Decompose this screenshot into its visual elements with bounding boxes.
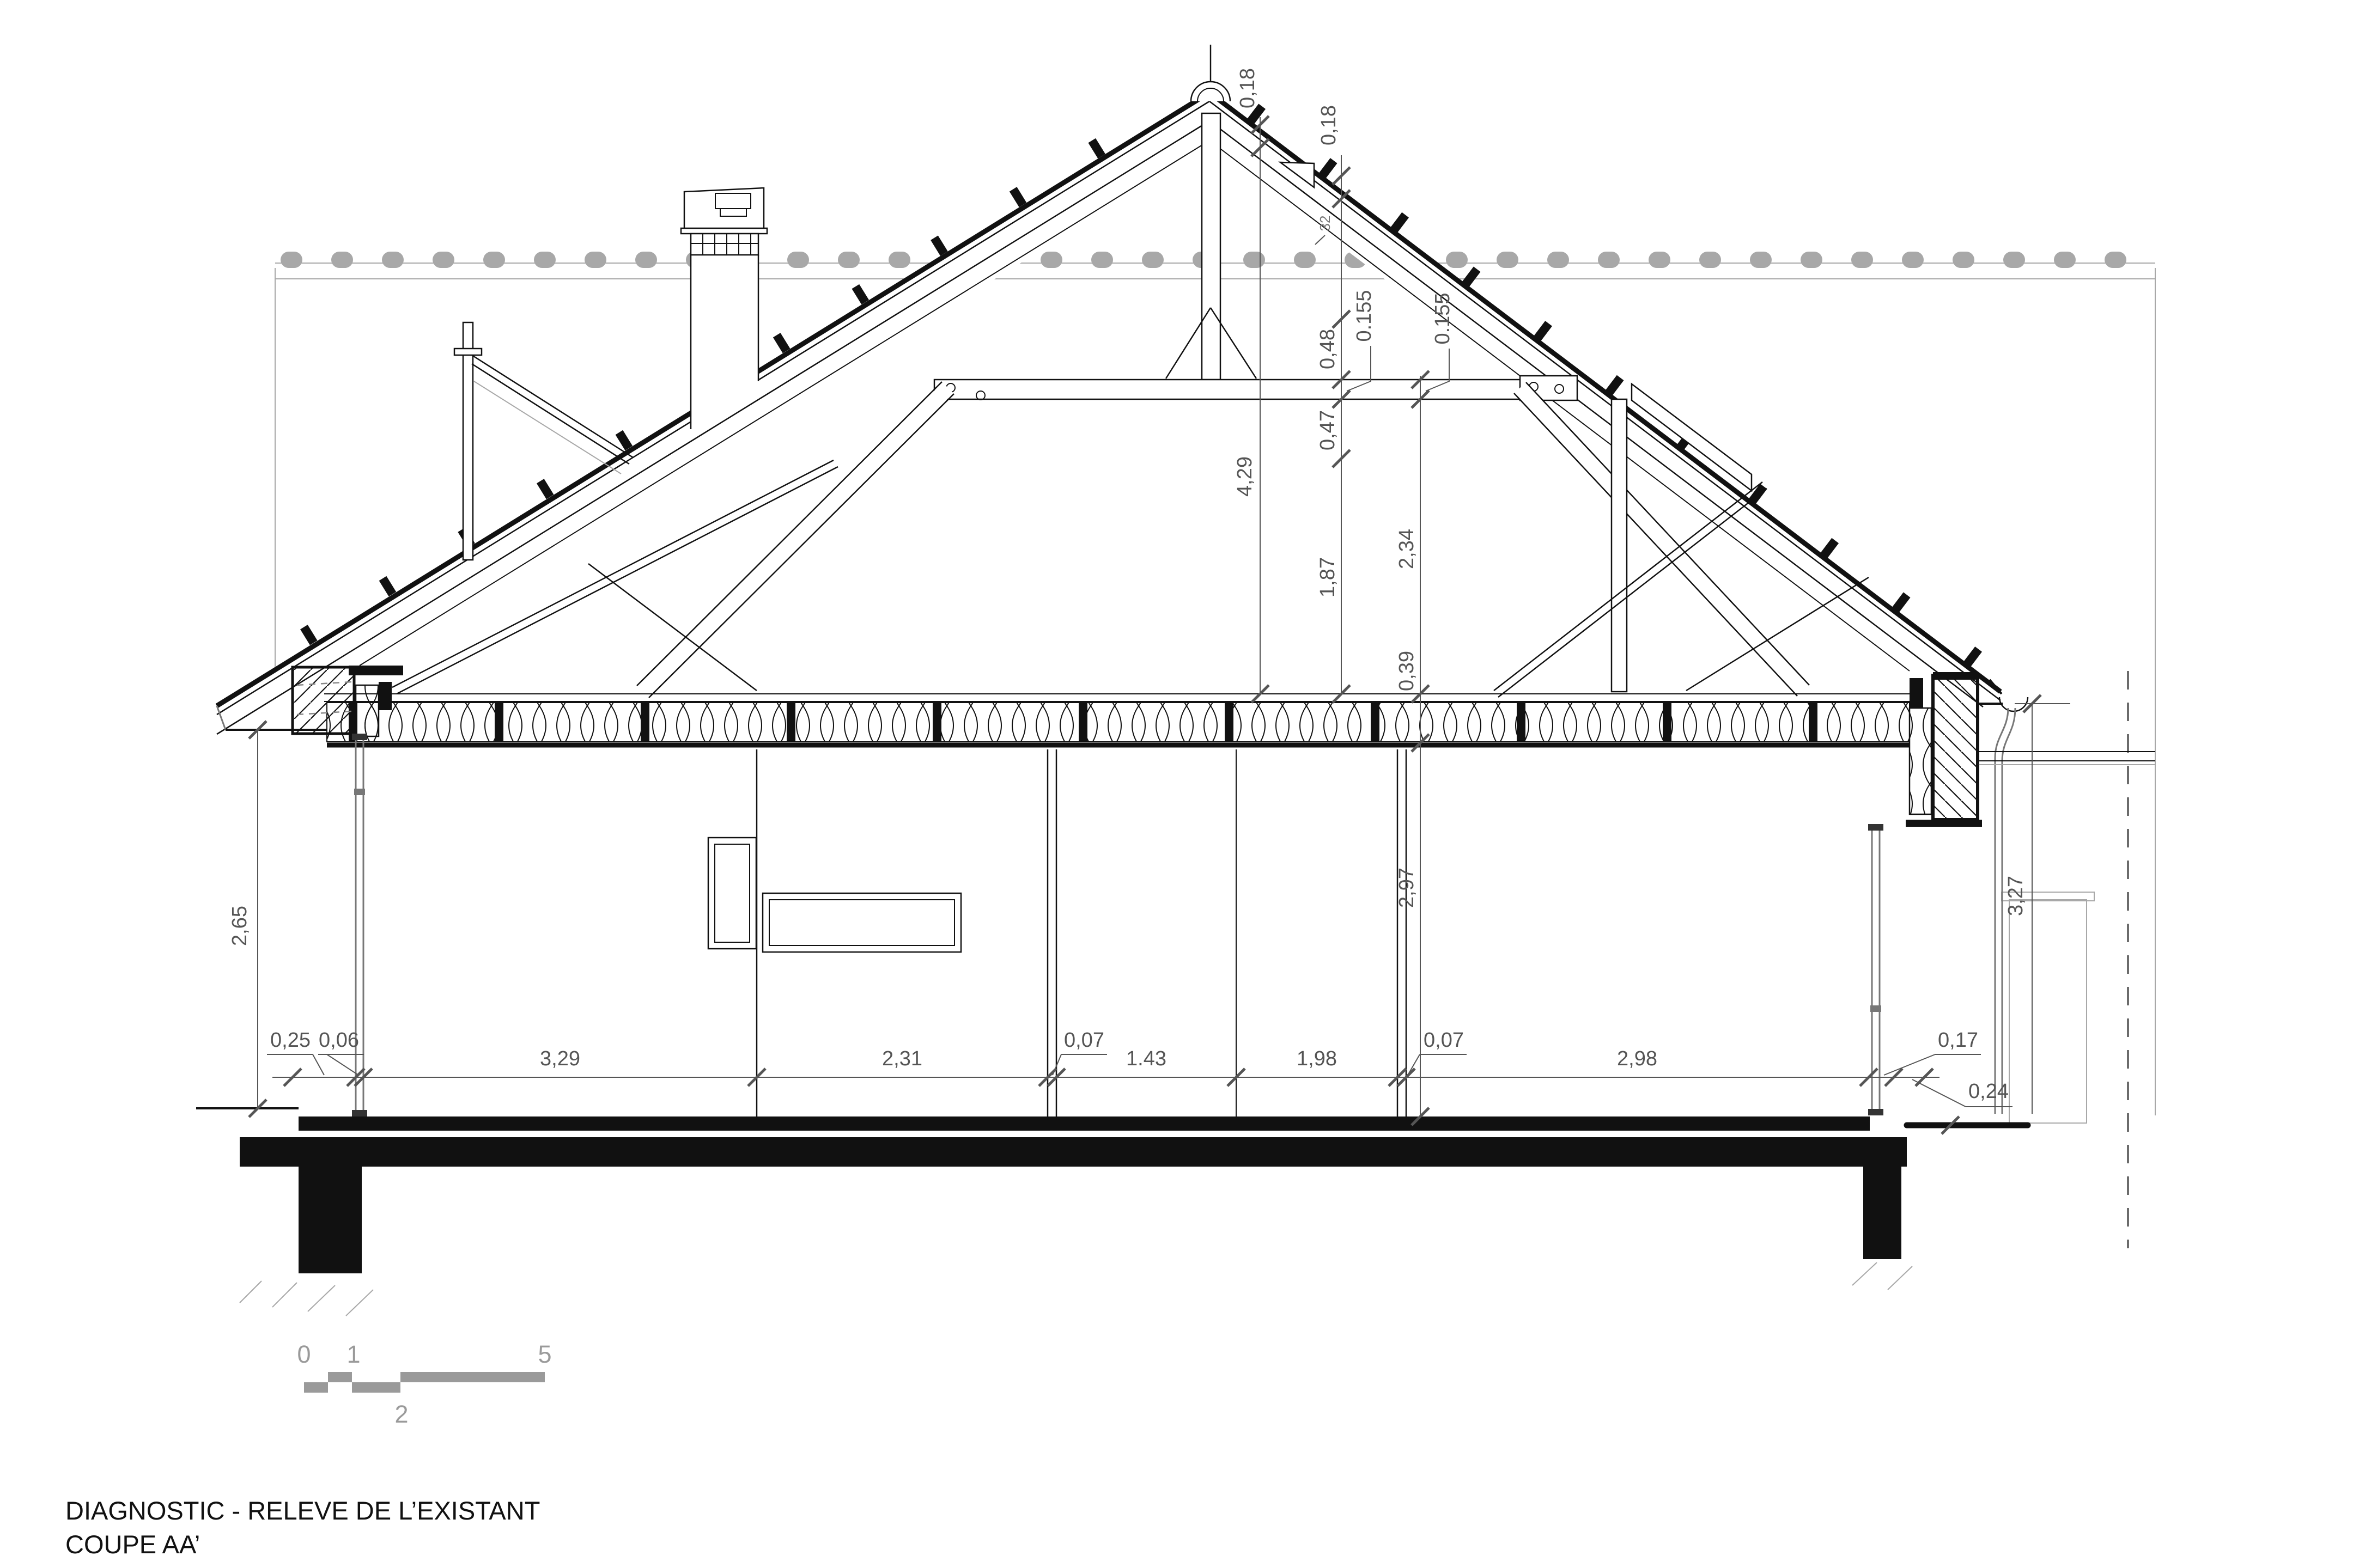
dim-047: 0,47	[1316, 410, 1339, 450]
dim-327: 3,27	[2004, 876, 2027, 916]
dim-007b: 0,07	[1424, 1029, 1464, 1052]
roof-note: 32	[1315, 216, 1333, 245]
left-height-dimension: 2,65	[228, 721, 266, 1117]
right-footing	[1863, 1167, 1901, 1259]
dim-0155c: 0.155	[1431, 292, 1454, 344]
dim-297: 2,97	[1395, 868, 1418, 908]
right-wall-plate	[1910, 678, 1923, 708]
drawing-sheet: 0,25 0,06 3,29 2,31 0,07 1.43 1,98 0,07 …	[0, 0, 2353, 1568]
dimensions: 0,25 0,06 3,29 2,31 0,07 1.43 1,98 0,07 …	[228, 68, 2070, 1125]
drawing-subtitle: COUPE AA’	[65, 1530, 200, 1559]
dim-024: 0,24	[1968, 1080, 2009, 1103]
left-glazing	[352, 734, 367, 1116]
right-height-dimension: 3,27	[2004, 695, 2070, 1114]
dim-017: 0,17	[1938, 1029, 1978, 1052]
background-door	[2009, 900, 2087, 1123]
wall-niche-vertical	[708, 838, 756, 949]
dim-265: 2,65	[228, 906, 251, 946]
dim-018a: 0,18	[1236, 68, 1259, 108]
dim-048: 0,48	[1316, 329, 1339, 369]
scale-bar: 0 1 2 5	[297, 1340, 551, 1428]
left-wall-plate	[379, 682, 392, 710]
drawing-title: DIAGNOSTIC - RELEVE DE L’EXISTANT	[65, 1496, 540, 1525]
right-wall-insulation	[1910, 708, 1931, 814]
dim-039: 0,39	[1395, 651, 1418, 691]
scale-label-5: 5	[538, 1340, 551, 1368]
dim-006: 0,06	[319, 1029, 359, 1052]
roof	[217, 45, 2028, 1114]
ceiling	[324, 694, 1920, 745]
right-wall-masonry	[1933, 675, 1978, 820]
scale-label-2: 2	[394, 1400, 408, 1428]
dim-234: 2,34	[1395, 529, 1418, 569]
left-lintel-insulation	[356, 685, 379, 736]
dim-187: 1,87	[1316, 557, 1339, 597]
dim-note-32: 32	[1317, 216, 1333, 231]
ceiling-insulation	[327, 703, 1910, 742]
dim-329: 3,29	[540, 1047, 580, 1070]
left-footing	[299, 1167, 362, 1273]
dim-298: 2,98	[1617, 1047, 1657, 1070]
dim-143: 1.43	[1126, 1047, 1166, 1070]
collar-beam	[934, 380, 1523, 399]
chimney-cap	[681, 188, 767, 255]
dim-025: 0,25	[270, 1029, 311, 1052]
dim-0155b: 0.155	[1353, 290, 1376, 341]
coupe-aa-drawing: 0,25 0,06 3,29 2,31 0,07 1.43 1,98 0,07 …	[0, 0, 2353, 1568]
wall-niche-horizontal	[763, 893, 961, 952]
scale-label-0: 0	[297, 1340, 311, 1368]
dim-018b: 0,18	[1317, 105, 1340, 145]
left-lintel-masonry	[293, 667, 354, 734]
dim-007a: 0,07	[1064, 1029, 1104, 1052]
background-structures	[275, 260, 2155, 1248]
ridge-cap	[1191, 45, 1230, 101]
dim-198: 1,98	[1297, 1047, 1337, 1070]
title-block: DIAGNOSTIC - RELEVE DE L’EXISTANT COUPE …	[65, 1496, 540, 1559]
floor-slab	[196, 1108, 2028, 1316]
bottom-dimension-chain: 0,25 0,06 3,29 2,31 0,07 1.43 1,98 0,07 …	[267, 1029, 2012, 1107]
king-post	[1202, 113, 1220, 380]
scale-label-1: 1	[346, 1340, 360, 1368]
dim-231: 2,31	[882, 1047, 922, 1070]
dim-429: 4,29	[1233, 456, 1256, 497]
